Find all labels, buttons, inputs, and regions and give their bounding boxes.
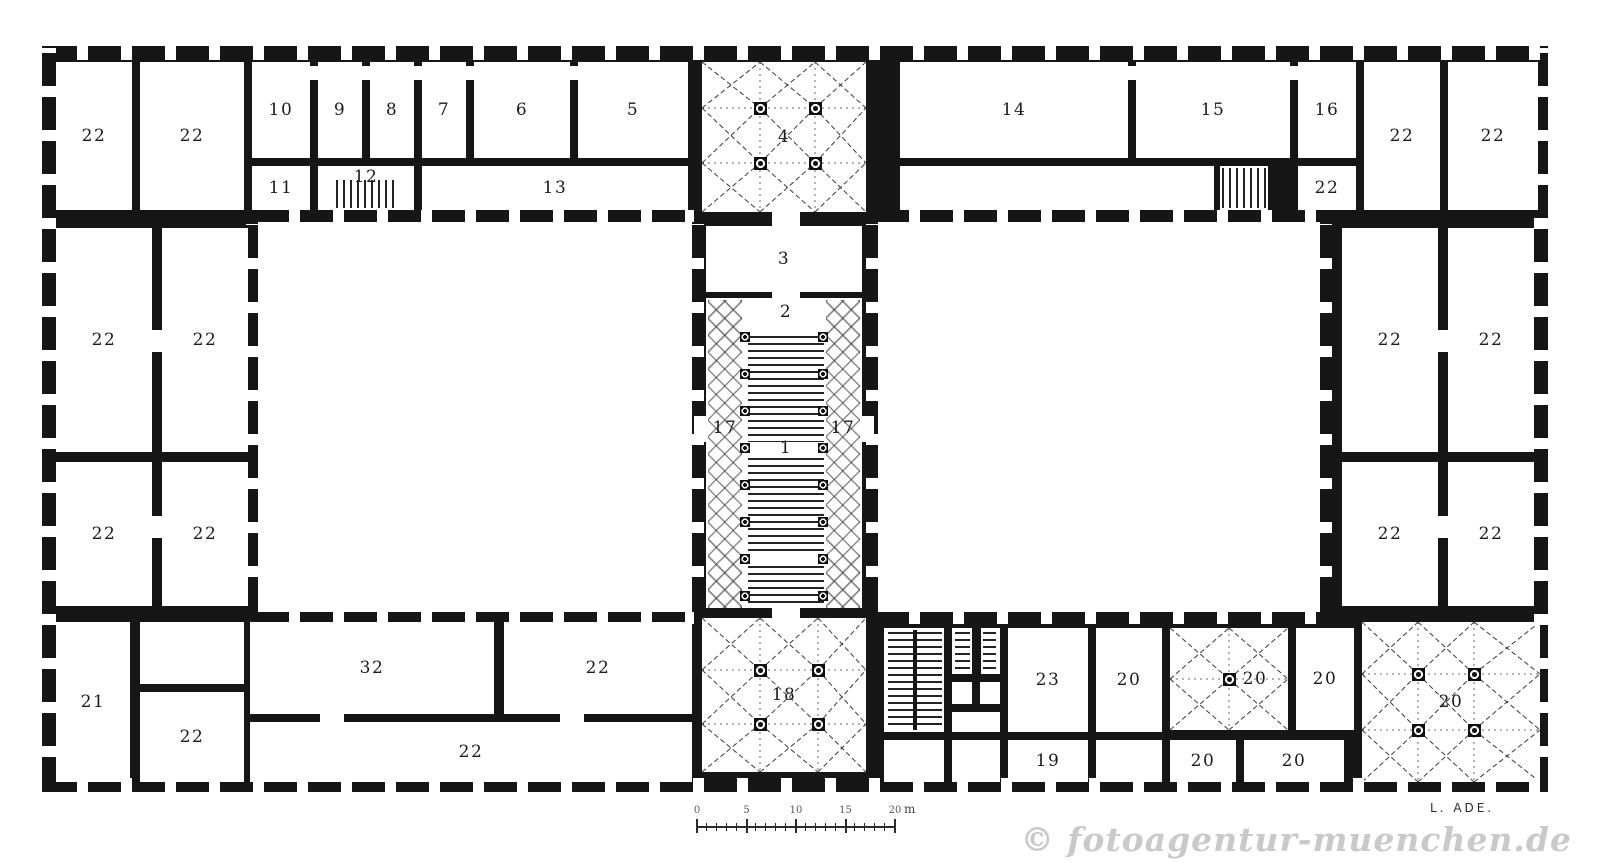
scale-tick [894,819,896,833]
room-unlabeled [140,622,244,684]
door-opening [152,330,162,352]
room-21: 21 [56,622,130,782]
room-4: 4 [702,62,866,212]
room-8: 8 [370,62,414,158]
watermark: © fotoagentur-muenchen.de [1021,820,1572,859]
column-pier [809,102,822,115]
scale-minor-tick [716,823,717,831]
scale-minor-tick [815,823,816,831]
scale-minor-tick [736,823,737,831]
door-opening [1438,516,1448,538]
stair-column [740,369,750,379]
stair-column [818,480,828,490]
room-20: 20 [1170,740,1236,782]
courtyard [258,222,692,612]
stair-column [740,406,750,416]
stair-column [818,443,828,453]
column-pier [1223,673,1236,686]
door-opening [694,416,706,442]
window-band [1534,48,1548,790]
room-number-label: 7 [438,100,450,120]
stair-column [740,480,750,490]
room-22: 22 [162,228,248,452]
room-unlabeled [1096,740,1162,782]
door-opening [310,66,318,80]
room-number-label: 21 [81,692,106,712]
column-pier [1468,724,1481,737]
room-number-label: 2 [780,302,792,322]
room-22: 22 [56,228,152,452]
stair-column [818,406,828,416]
column-pier [1412,724,1425,737]
room-number-label: 22 [1479,330,1504,350]
room-23: 23 [1008,628,1088,732]
room-unlabeled [952,682,972,704]
window-band [1320,224,1332,610]
room-number-label: 8 [386,100,398,120]
room-number-label: 22 [459,742,484,762]
scale-tick [746,819,748,833]
room-22: 22 [504,622,692,714]
room-number-label: 17 [831,418,856,438]
door-opening [152,516,162,538]
room-unlabeled [980,682,1000,704]
room-22: 22 [1364,62,1440,210]
room-number-label: 20 [1313,669,1338,689]
staircase-hatch [1222,168,1266,208]
room-number-label: 32 [360,658,385,678]
room-11: 11 [252,166,310,210]
door-opening [862,416,874,442]
room-22: 22 [1448,462,1534,606]
room-22: 22 [56,462,152,606]
stair-column [740,517,750,527]
window-band [256,210,694,222]
window-band [42,48,56,790]
room-number-label: 22 [586,658,611,678]
room-number-label: 11 [269,178,294,198]
room-unlabeled [952,740,1000,782]
staircase-hatch [336,180,396,208]
scale-minor-tick [874,823,875,831]
room-20: 20 [1096,628,1162,732]
room-number-label: 5 [627,100,639,120]
room-15: 15 [1136,62,1290,158]
door-opening [414,66,422,80]
column-pier [754,664,767,677]
door-opening [772,290,800,298]
staircase-hatch [748,566,824,608]
room-number-label: 19 [1036,751,1061,771]
room-number-label: 22 [193,330,218,350]
room-unlabeled [900,166,1214,210]
room-number-label: 22 [1378,524,1403,544]
staircase-hatch [917,632,942,728]
room-number-label: 22 [92,524,117,544]
stair-column [740,443,750,453]
floor-plan: 2222109876511121341415162222222222222222… [0,0,1600,863]
scale-minor-tick [706,823,707,831]
room-6: 6 [474,62,570,158]
stair-column [818,332,828,342]
vault-aisle [826,300,860,608]
courtyard [878,222,1320,612]
door-opening [570,66,578,80]
room-22: 22 [1298,166,1356,210]
room-number-label: 1 [780,438,792,458]
room-number-label: 22 [1481,126,1506,146]
stair-column [818,369,828,379]
stair-column [818,591,828,601]
floor-plan-canvas: 2222109876511121341415162222222222222222… [0,0,1600,863]
column-pier [754,102,767,115]
room-number-label: 3 [778,249,790,269]
stair-column [818,554,828,564]
vault-pattern [702,62,866,212]
room-22: 22 [1342,462,1438,606]
scale-minor-tick [785,823,786,831]
door-opening [320,714,344,722]
window-band [44,778,1546,792]
room-unlabeled [952,712,1000,732]
room-number-label: 20 [1117,670,1142,690]
vault-pattern [702,618,866,772]
column-pier [1468,668,1481,681]
room-22: 22 [140,62,244,210]
room-22: 22 [140,692,244,782]
room-number-label: 6 [516,100,528,120]
column-pier [754,157,767,170]
wall-segment [913,630,917,730]
room-number-label: 22 [1315,178,1340,198]
room-number-label: 20 [1191,751,1216,771]
staircase-hatch [888,632,913,728]
window-band [44,46,1546,60]
staircase-hatch [983,632,996,670]
scale-minor-tick [884,823,885,831]
room-22: 22 [1448,62,1538,210]
stair-column [818,517,828,527]
room-18: 18 [702,618,866,772]
room-number-label: 22 [1378,330,1403,350]
column-pier [1412,668,1425,681]
scale-tick [696,819,698,833]
room-22: 22 [250,722,692,782]
room-number-label: 22 [180,126,205,146]
room-20: 20 [1170,628,1288,730]
room-number-label: 23 [1036,670,1061,690]
scale-minor-tick [835,823,836,831]
scale-minor-tick [775,823,776,831]
room-20: 20 [1244,740,1344,782]
vault-pattern [1362,622,1540,782]
room-number-label: 17 [713,418,738,438]
room-7: 7 [422,62,466,158]
stair-column [740,591,750,601]
scale-minor-tick [755,823,756,831]
room-14: 14 [900,62,1128,158]
door-opening [362,66,370,80]
engraver-signature: L. ADE. [1430,801,1494,815]
scale-tick [795,819,797,833]
room-22: 22 [56,62,132,210]
door-opening [1438,330,1448,352]
room-9: 9 [318,62,362,158]
staircase-hatch [748,458,824,556]
scale-minor-tick [805,823,806,831]
room-unlabeled [884,740,944,782]
room-32: 32 [250,622,494,714]
scale-label: 10 [790,805,803,816]
stair-column [740,332,750,342]
scale-minor-tick [864,823,865,831]
column-pier [754,718,767,731]
room-22: 22 [1448,228,1534,452]
scale-minor-tick [765,823,766,831]
door-opening [466,66,474,80]
window-band [256,612,694,624]
scale-label: 0 [694,805,700,816]
scale-minor-tick [854,823,855,831]
stair-column [740,554,750,564]
scale-unit: m [904,802,915,816]
room-13: 13 [422,166,688,210]
door-opening [1290,66,1298,80]
window-band [876,210,1322,222]
room-number-label: 22 [180,727,205,747]
room-number-label: 22 [193,524,218,544]
room-number-label: 13 [543,178,568,198]
column-pier [812,664,825,677]
room-number-label: 9 [334,100,346,120]
door-opening [1128,66,1136,80]
window-band [246,224,258,610]
vault-aisle [708,300,742,608]
scale-label: 5 [743,805,749,816]
column-pier [812,718,825,731]
staircase-hatch [955,632,970,670]
room-22: 22 [1342,228,1438,452]
room-19: 19 [1008,740,1088,782]
room-22: 22 [162,462,248,606]
door-opening [772,608,800,618]
column-pier [809,157,822,170]
room-16: 16 [1298,62,1356,158]
room-number-label: 20 [1282,751,1307,771]
scale-minor-tick [726,823,727,831]
room-number-label: 16 [1315,100,1340,120]
room-number-label: 22 [1479,524,1504,544]
room-5: 5 [578,62,688,158]
room-number-label: 15 [1201,100,1226,120]
scale-label: 15 [839,805,852,816]
scale-minor-tick [825,823,826,831]
room-number-label: 22 [82,126,107,146]
room-3: 3 [706,226,862,292]
room-number-label: 10 [269,100,294,120]
wall-segment [972,628,981,674]
room-number-label: 22 [1390,126,1415,146]
room-20: 20 [1362,622,1540,782]
door-opening [560,714,584,722]
room-number-label: 14 [1002,100,1027,120]
window-band [876,612,1322,624]
staircase-hatch [748,336,824,442]
scale-bar: 05101520m [676,804,938,850]
room-number-label: 22 [92,330,117,350]
room-10: 10 [252,62,310,158]
door-opening [772,212,800,226]
room-20: 20 [1296,628,1354,730]
scale-label: 20 [889,805,902,816]
scale-tick [845,819,847,833]
